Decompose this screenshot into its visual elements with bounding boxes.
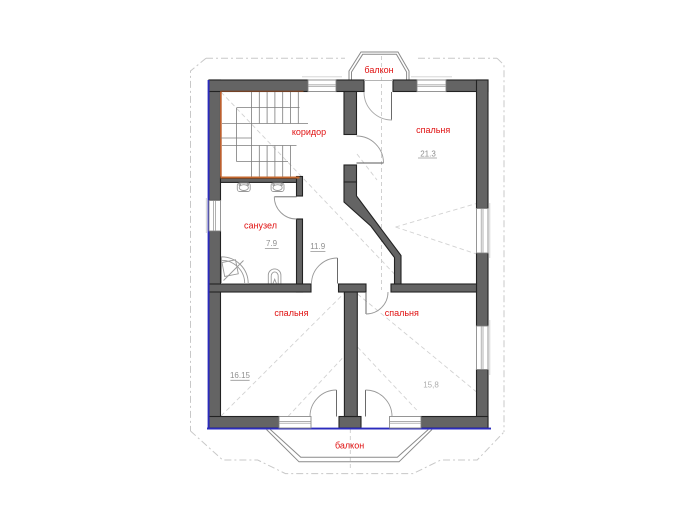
svg-text:7.9: 7.9	[266, 239, 278, 248]
svg-text:коридор: коридор	[292, 127, 326, 137]
svg-text:11.9: 11.9	[310, 242, 326, 251]
svg-text:16.15: 16.15	[230, 371, 251, 380]
svg-text:спальня: спальня	[385, 308, 419, 318]
svg-text:спальня: спальня	[274, 308, 308, 318]
svg-text:21.3: 21.3	[420, 149, 436, 158]
svg-text:15,8: 15,8	[423, 380, 439, 389]
svg-text:санузел: санузел	[244, 220, 277, 230]
svg-text:балкон: балкон	[335, 440, 364, 450]
svg-text:спальня: спальня	[416, 125, 450, 135]
svg-text:балкон: балкон	[364, 65, 393, 75]
